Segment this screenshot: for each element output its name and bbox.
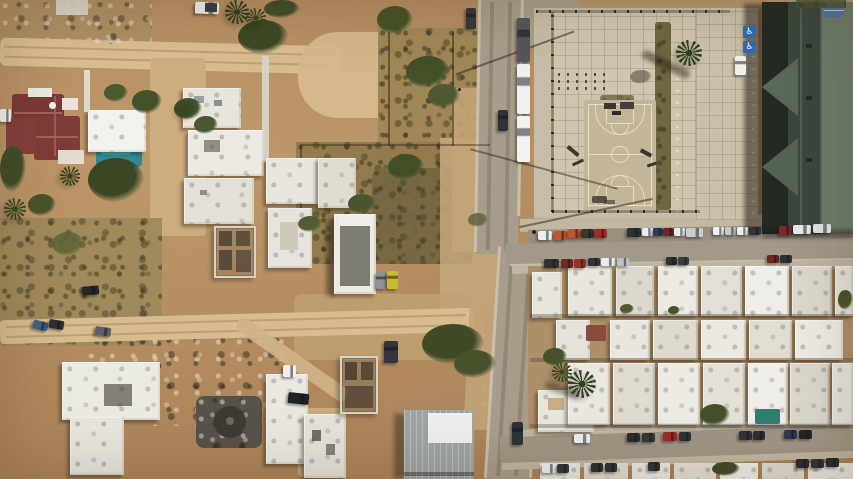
house-sw-wing [70,417,124,475]
tree-canopy [52,232,84,256]
parked-car [749,227,761,235]
parked-car [561,259,573,268]
house-roadside [532,272,562,318]
patio-tree [700,404,730,426]
red-house-white-corner [62,98,78,110]
parked-car [601,258,615,266]
house-sw-patio-dark [104,384,132,406]
construction-room [236,250,251,272]
truck-bed [205,3,217,12]
tree-canopy [454,350,496,378]
patio-tree [620,304,634,314]
handicap-parking-icon: ♿ [743,41,756,53]
palm-tree [568,370,596,398]
trees-topright-corner [796,0,846,8]
parked-car [568,229,581,238]
courtyard-dark [204,140,220,152]
parked-car [737,227,748,235]
white-house-nw [88,110,146,152]
parked-car [627,433,640,442]
school-roof-east [822,2,853,234]
playground-equipment [604,103,616,109]
utility-pole [458,88,461,91]
tree-canopy [132,90,162,114]
tree-canopy [468,213,488,227]
parked-car [591,463,603,472]
parked-car [574,434,590,443]
car-on-road [466,8,476,29]
parked-car [779,226,792,235]
house-roof [745,266,789,316]
parked-car [594,229,607,238]
tree-canopy [377,6,413,34]
palapa-cone-center [226,417,234,425]
parked-car [663,432,677,441]
house-roof [610,320,650,360]
tree-canopy [104,84,128,102]
parked-car [753,431,765,440]
parked-car [679,432,691,441]
property-wall [84,70,90,112]
parked-car [666,257,677,265]
tree-canopy [428,84,460,108]
parked-car [674,228,685,236]
planter-strip [655,22,671,210]
construction-room [236,231,250,246]
house-roof [658,363,700,425]
parked-car [796,459,809,468]
parked-car [0,109,11,122]
palm-tree [4,198,26,220]
house-roof [790,363,830,425]
tree-canopy [348,194,376,214]
school-solar-frame [824,10,844,11]
house-roof [613,363,655,425]
parked-car [642,228,653,236]
patio-tree [668,306,680,315]
warehouse-white-section [428,413,472,443]
parked-car [642,433,655,442]
building-complex-c [184,178,254,224]
school-roof-dark-west [762,2,788,234]
parked-car [554,231,567,240]
parked-car [287,392,309,405]
row-shadow [530,358,853,362]
parked-bus [517,116,530,162]
palm-tree [676,40,702,66]
construction-room [219,231,232,246]
parked-car [581,229,594,238]
parking-dash-column [676,78,679,212]
construction-room [345,386,373,408]
doorway-dark [326,444,335,455]
tree-canopy [28,194,56,216]
school-ridge [820,2,822,234]
plaza-fence-top [536,10,730,13]
plaza-paint-dots [558,87,606,90]
rooftop-ac-unit [214,100,222,106]
parked-bus [517,18,530,62]
parked-car [82,285,100,295]
parked-car [283,365,296,377]
row-shadow [530,314,853,318]
parked-car [713,227,724,235]
rooftop-vent [200,190,207,195]
house-roof [749,320,792,360]
parked-truck [813,224,831,233]
white-building [266,374,308,464]
patio-tree [838,290,853,310]
parked-car [648,462,660,471]
playground-equipment [612,111,621,115]
parked-car [653,228,663,236]
tree-canopy [388,154,424,180]
courtyard-pale [280,222,298,250]
doorway-dark [312,430,321,441]
construction-room [219,250,232,270]
parked-car [811,459,824,468]
pickup-truck [735,56,746,75]
garden-canopy [88,158,144,202]
school-vent [806,44,812,48]
palm-tree [246,8,266,28]
parked-car [542,464,556,473]
parked-car [544,259,559,268]
court-clutter [604,200,615,204]
plaza-paint-dots [558,73,606,76]
school-vent [806,96,812,100]
parked-car [574,259,586,268]
parked-car [617,258,629,266]
handicap-parking-icon: ♿ [743,26,756,38]
parked-truck [793,225,811,234]
roadside-dirt-patch [548,398,564,410]
house-roof [792,266,832,316]
white-building [266,158,318,204]
teal-tarp [755,409,780,424]
red-house-terrace [58,150,84,164]
school-ridge [800,2,802,234]
debris-pile [92,18,132,44]
parked-car [780,255,792,263]
tall-building-shadow [326,220,334,296]
house-red-tile-roof [586,325,606,341]
house-roof [832,363,853,425]
school-vent [806,158,812,162]
satellite-dish [49,102,56,109]
yellow-car [387,271,398,289]
parked-car [588,258,600,266]
parked-car [799,430,812,439]
parked-car [557,464,569,473]
aerial-photo: ♿♿ [0,0,853,479]
tall-building-top [338,215,372,226]
parked-car [739,431,752,440]
palm-tree [176,100,194,118]
lot-fence [300,144,490,146]
palm-frond-shadow [630,70,652,84]
car-on-road [498,110,508,131]
parked-car [538,231,552,240]
parked-car [627,228,641,237]
house-roof [568,266,612,316]
building-complex-b [188,130,264,176]
palm-tree [552,362,572,382]
parked-car [663,228,674,236]
house-roof [701,320,746,360]
tree-canopy [264,0,300,18]
red-house-white-patio [28,88,52,97]
playground-equipment [620,102,634,109]
tree-canopy [298,216,322,232]
row-shadow [530,424,853,428]
tall-building-roof [340,222,370,286]
construction-room [345,362,357,380]
warehouse-edge [404,472,474,476]
parked-car [826,458,839,467]
house-roof [674,463,716,479]
palm-tree [60,166,80,186]
tree-canopy [0,146,26,192]
parked-car [678,257,689,265]
court-center-circle [611,146,629,163]
parked-bus [517,64,530,114]
parked-van [384,341,398,363]
red-roof-ridge [36,136,78,138]
plaza-fence-left [551,12,554,212]
parked-car [605,463,617,472]
car-on-road [512,422,523,445]
house-roof [701,266,742,316]
parked-car [725,227,736,235]
white-building [304,414,346,478]
house-roof [795,320,843,360]
house-roof [653,320,698,360]
parked-van [686,228,703,237]
white-storage-shed [56,0,88,15]
utility-pole [532,230,536,234]
plaza-paint-dots [558,80,606,83]
parked-car [767,255,779,263]
plaza-fence-bottom [552,210,700,213]
patio-tree [712,462,740,476]
parked-car [376,272,386,289]
tree-canopy [194,116,218,134]
construction-room [361,362,373,380]
lot-fence [388,32,390,146]
parked-car [784,430,797,439]
